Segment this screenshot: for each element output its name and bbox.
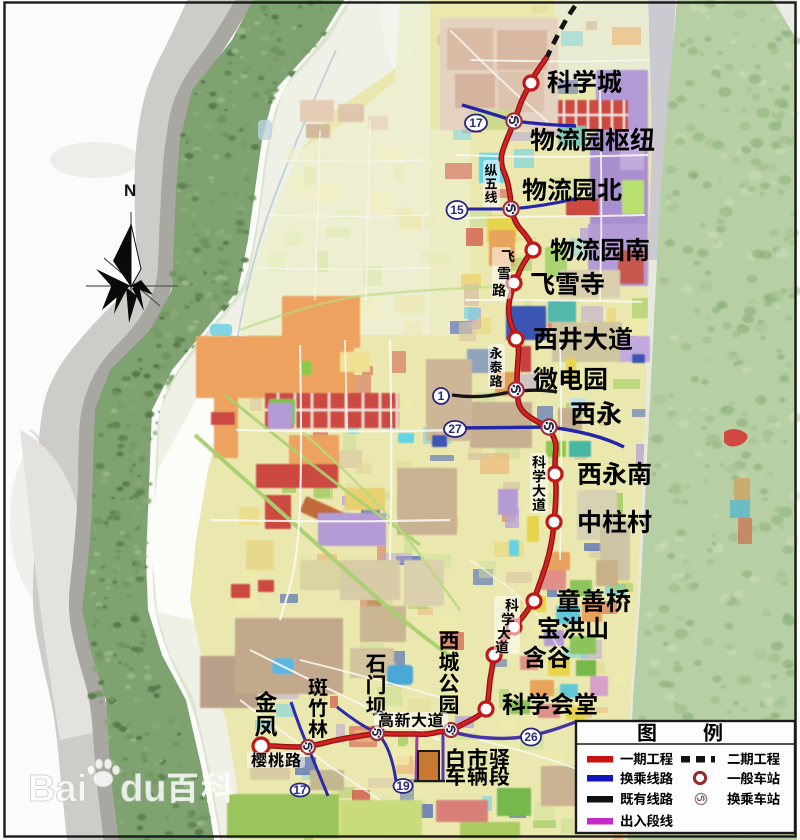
svg-text:du: du xyxy=(120,768,166,810)
svg-text:Bai: Bai xyxy=(28,768,87,810)
svg-text:27: 27 xyxy=(448,422,462,436)
svg-text:17: 17 xyxy=(469,116,483,130)
svg-text:19: 19 xyxy=(396,779,410,793)
svg-text:17: 17 xyxy=(293,783,307,797)
svg-text:26: 26 xyxy=(524,730,538,744)
svg-text:1: 1 xyxy=(438,389,445,403)
svg-text:15: 15 xyxy=(450,203,464,217)
svg-text:N: N xyxy=(124,181,136,200)
